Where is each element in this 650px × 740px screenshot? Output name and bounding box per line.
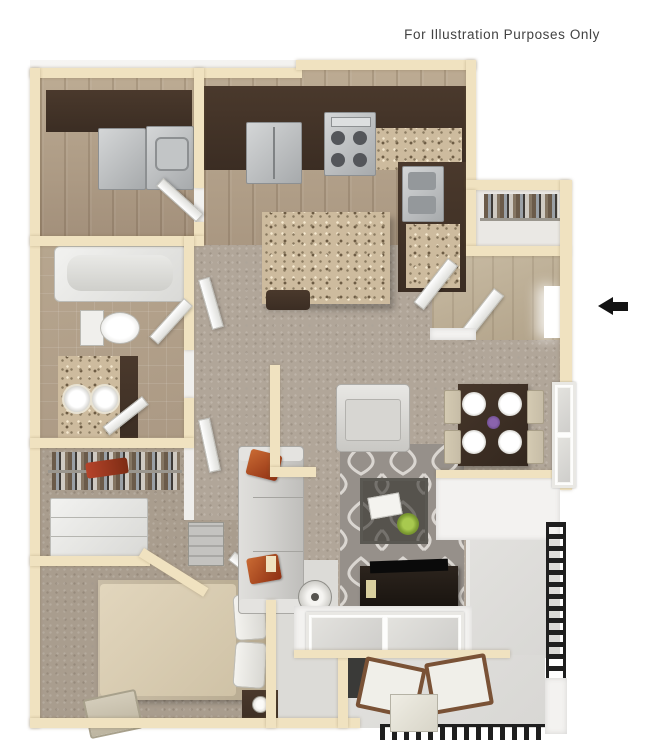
vanity-sink [62,384,92,414]
wall-bath-right-lower [184,398,194,440]
wall-hall-patio [338,655,348,728]
glass-pane [557,437,571,483]
island-stool [266,290,310,310]
closet-dresser [50,498,148,558]
stove [324,112,376,176]
dining-chair [444,430,461,464]
disclaimer-text: For Illustration Purposes Only [404,27,600,42]
bedroom-shelf-unit [188,522,224,566]
glass-pane [557,387,571,433]
front-door-opening [544,286,560,338]
floor-plan-canvas: For Illustration Purposes Only [0,0,650,740]
dresser-line [51,517,147,518]
wall-bath-bottom [30,438,194,448]
dresser-line [51,536,147,537]
coffee-table [360,478,428,544]
wall-coat-closet-bottom [466,246,570,256]
bed-comforter [100,584,236,696]
entry-wall-nub [430,328,476,340]
bed-pillow [232,641,267,689]
sofa-cushion-line [253,551,303,552]
armchair-seat [345,399,401,441]
wall-laundry-bath-divider [30,236,204,246]
dining-table [458,384,528,466]
fruit-bowl [397,513,419,535]
table-centerpiece [487,416,500,429]
coat-closet-rod [480,218,560,221]
wall-bath-right-upper [184,236,194,350]
armchair [336,384,410,452]
burner [353,131,367,145]
lamp-finial [311,593,319,601]
washer [98,128,146,190]
kitchen-sink [402,166,444,222]
bathtub-basin [67,255,173,291]
coat-closet-clothes [484,194,558,220]
dining-window [552,382,576,488]
arrow-tail [611,302,628,311]
glass-pane [387,617,459,651]
glass-pane [311,617,383,651]
dryer [146,126,194,190]
wall-coat-closet-left [466,190,476,246]
refrigerator-handle [273,127,275,179]
sofa-cushion-line [253,497,303,498]
place-setting [498,430,522,454]
wall-closet-bottom [30,556,150,566]
bathtub [54,246,188,302]
place-setting [462,392,486,416]
burner [353,153,367,167]
dryer-door [155,137,189,171]
wall-kitchen-right [466,60,476,188]
place-setting [462,430,486,454]
wall-bedroom-right [266,600,276,728]
burner [331,131,345,145]
wall-hall-spur-nub [270,467,316,477]
wall-corner-block-edge [436,470,560,478]
wall-entry-wing-top [466,180,570,190]
place-setting [498,392,522,416]
tv [370,559,448,574]
wall-corner-block [436,470,560,540]
console-decor [366,580,376,598]
sink-basin [408,172,436,190]
sink-basin [408,196,436,214]
toilet-bowl [100,312,140,344]
wall-bottom [30,718,360,728]
entry-arrow-icon [598,297,628,316]
wall-top-left [30,68,302,78]
dining-chair [527,390,544,424]
wall-bedroom-right-nub [266,556,276,572]
wall-top-right [296,60,476,70]
dining-chair [527,430,544,464]
burner [331,153,345,167]
wall-hall-spur [270,365,280,475]
wall-left [30,68,40,728]
patio-side-table [390,694,438,732]
stove-control-panel [331,117,371,127]
dining-chair [444,390,461,424]
balcony-railing-right [546,522,566,678]
refrigerator [246,122,302,184]
sofa-pillow [246,553,282,584]
magazines [367,492,402,519]
balcony-parapet [545,678,567,734]
wall-laundry-right [194,68,204,188]
vanity-sink [90,384,120,414]
